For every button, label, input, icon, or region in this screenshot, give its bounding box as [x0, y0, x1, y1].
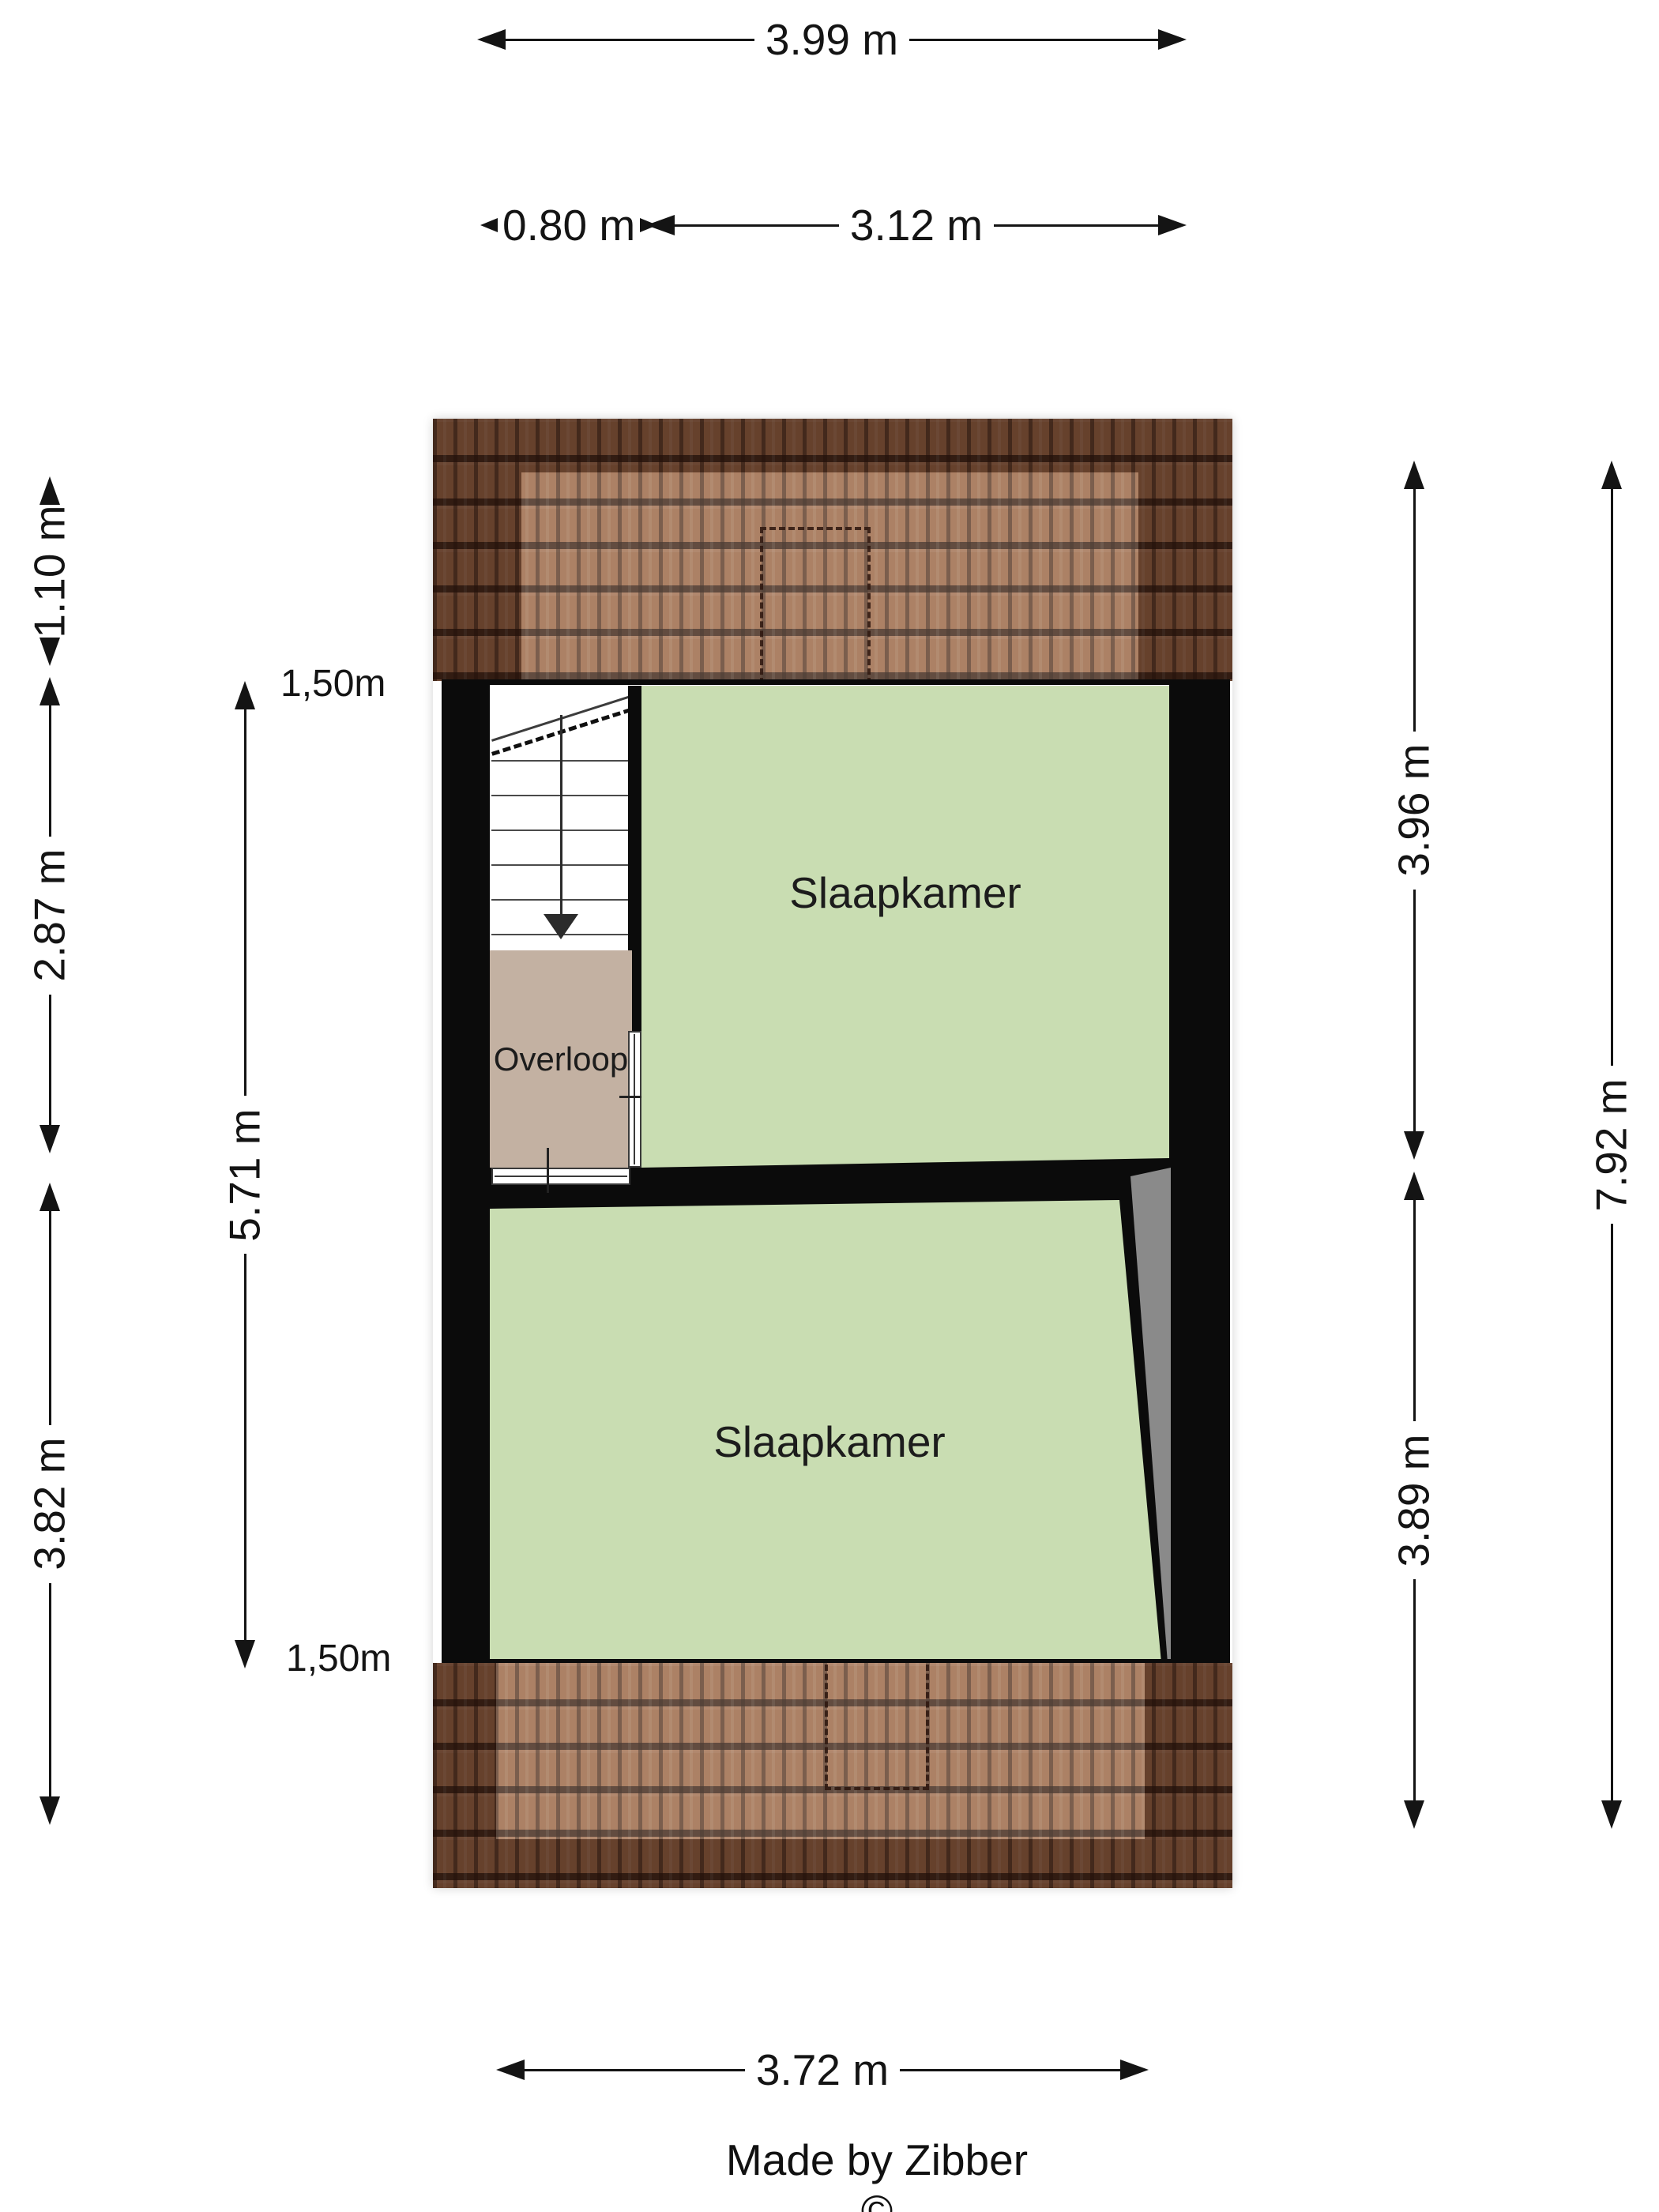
- arrowhead-up-icon: [39, 476, 60, 505]
- floorplan-page: 3.99 m 0.80 m 3.12 m 1.10 m 2.87 m 3.82 …: [0, 0, 1659, 2212]
- arrowhead-down-icon: [1601, 1800, 1622, 1829]
- wall-right: [1169, 681, 1230, 1663]
- dimension-right-lower-depth: 3.89 m: [1389, 1172, 1439, 1829]
- stairwell: [490, 686, 632, 950]
- arrowhead-right-icon: [1120, 2060, 1149, 2080]
- floorplan-drawing: Overloop Slaapkamer Slaapkamer: [433, 419, 1232, 1888]
- room-bedroom-bottom: Slaapkamer: [490, 1158, 1169, 1663]
- arrowhead-left-icon: [480, 218, 498, 232]
- arrowhead-right-icon: [1158, 29, 1187, 50]
- dimension-bottom-width: 3.72 m: [496, 2045, 1149, 2095]
- dimension-label: 7.92 m: [1590, 1078, 1634, 1211]
- dimension-stair-width: 0.80 m: [480, 200, 634, 250]
- roof-bottom: [433, 1663, 1232, 1888]
- arrowhead-up-icon: [1404, 1172, 1424, 1200]
- arrowhead-down-icon: [1404, 1800, 1424, 1829]
- dimension-label: 5.71 m: [224, 1108, 267, 1241]
- room-landing: Overloop: [490, 950, 632, 1168]
- arrowhead-left-icon: [646, 215, 675, 235]
- dimension-bedroom-top-width: 3.12 m: [646, 200, 1187, 250]
- room-label: Slaapkamer: [490, 1420, 1169, 1464]
- dimension-label: 3.99 m: [754, 18, 909, 62]
- dimension-roof-top-depth: 1.10 m: [24, 476, 75, 664]
- room-bedroom-top: Slaapkamer: [641, 686, 1169, 1173]
- stairs-direction-arrow: [560, 715, 562, 914]
- roof-top: [433, 419, 1232, 681]
- roof-window-dashed-outline: [825, 1665, 929, 1790]
- dimension-label: 2.87 m: [28, 848, 72, 981]
- dimension-left-upper-depth: 2.87 m: [24, 677, 75, 1153]
- room-label: Overloop: [494, 1040, 628, 1078]
- arrowhead-down-icon: [235, 1640, 255, 1668]
- room-label: Slaapkamer: [641, 871, 1169, 915]
- headroom-marker-bottom: 1,50m: [286, 1640, 391, 1678]
- door-bottom-bedroom: [491, 1168, 630, 1185]
- arrowhead-down-icon: [39, 638, 60, 666]
- dimension-label: 3.12 m: [839, 204, 994, 247]
- dimension-right-total-depth: 7.92 m: [1586, 461, 1637, 1829]
- arrowhead-left-icon: [496, 2060, 525, 2080]
- arrowhead-down-icon: [39, 1125, 60, 1153]
- dimension-label: 1.10 m: [28, 505, 72, 638]
- arrowhead-right-icon: [1158, 215, 1187, 235]
- arrowhead-down-icon: [39, 1796, 60, 1825]
- arrowhead-down-icon: [1404, 1131, 1424, 1160]
- dimension-top-width: 3.99 m: [477, 14, 1187, 65]
- arrowhead-up-icon: [39, 1183, 60, 1211]
- arrowhead-up-icon: [1601, 461, 1622, 489]
- dimension-interior-depth: 5.71 m: [220, 681, 270, 1668]
- arrowhead-up-icon: [235, 681, 255, 709]
- arrowhead-left-icon: [477, 29, 506, 50]
- headroom-marker-top: 1,50m: [280, 665, 386, 703]
- credit-text: Made by Zibber ©: [711, 2135, 1043, 2212]
- door-top-bedroom: [628, 1031, 641, 1168]
- door-tick: [547, 1148, 549, 1193]
- dimension-label: 0.80 m: [498, 204, 640, 247]
- dimension-label: 3.89 m: [1393, 1434, 1436, 1567]
- dimension-label: 3.96 m: [1393, 743, 1436, 876]
- dimension-label: 3.82 m: [28, 1437, 72, 1570]
- wall-top-edge: [442, 679, 1230, 685]
- arrowhead-up-icon: [39, 677, 60, 705]
- dimension-right-upper-depth: 3.96 m: [1389, 461, 1439, 1160]
- stairs-arrow-head-icon: [544, 914, 578, 939]
- roof-window-dashed-outline: [760, 527, 871, 684]
- dimension-left-lower-depth: 3.82 m: [24, 1183, 75, 1825]
- arrowhead-up-icon: [1404, 461, 1424, 489]
- dimension-label: 3.72 m: [745, 2048, 900, 2092]
- wall-left: [442, 681, 490, 1663]
